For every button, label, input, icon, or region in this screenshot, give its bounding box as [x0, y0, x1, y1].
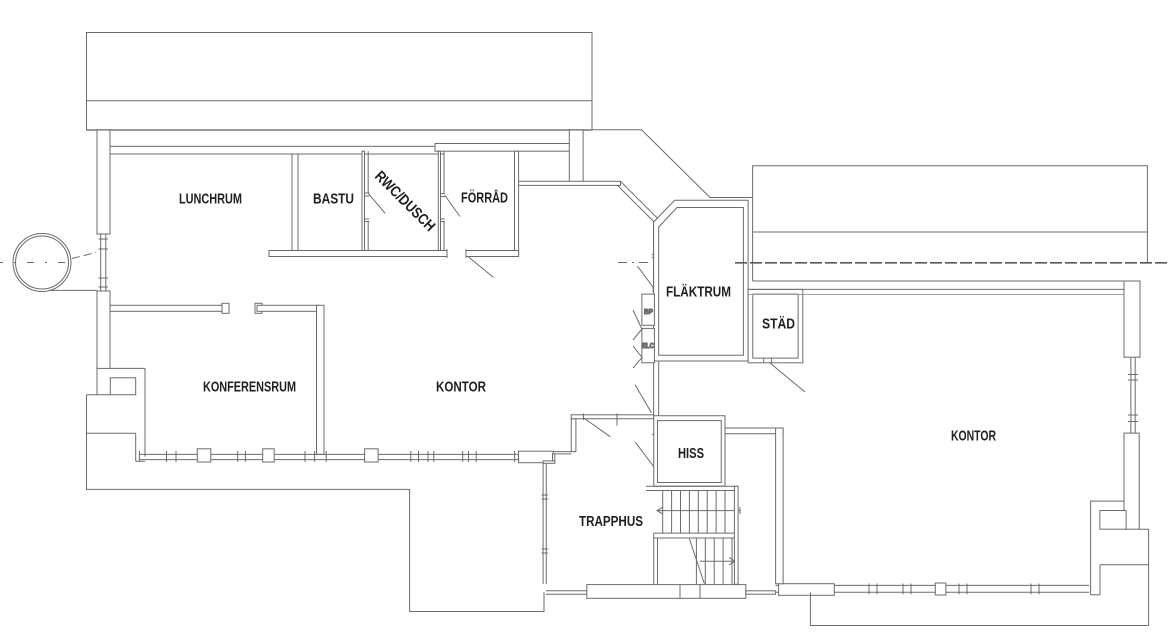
svg-text:BASTU: BASTU	[313, 191, 354, 208]
svg-text:FLÄKTRUM: FLÄKTRUM	[666, 284, 731, 301]
svg-text:STÄD: STÄD	[762, 316, 795, 333]
svg-text:TRAPPHUS: TRAPPHUS	[579, 513, 643, 530]
svg-text:HISS: HISS	[678, 445, 704, 462]
svg-text:BP: BP	[644, 307, 653, 316]
svg-text:LUNCHRUM: LUNCHRUM	[179, 191, 242, 208]
svg-text:ELC: ELC	[642, 341, 654, 350]
svg-text:FÖRRÅD: FÖRRÅD	[461, 190, 508, 207]
svg-text:KONFERENSRUM: KONFERENSRUM	[203, 379, 296, 396]
svg-text:RWC/DUSCH: RWC/DUSCH	[371, 168, 438, 235]
svg-text:KONTOR: KONTOR	[951, 428, 996, 445]
svg-text:KONTOR: KONTOR	[436, 379, 486, 396]
